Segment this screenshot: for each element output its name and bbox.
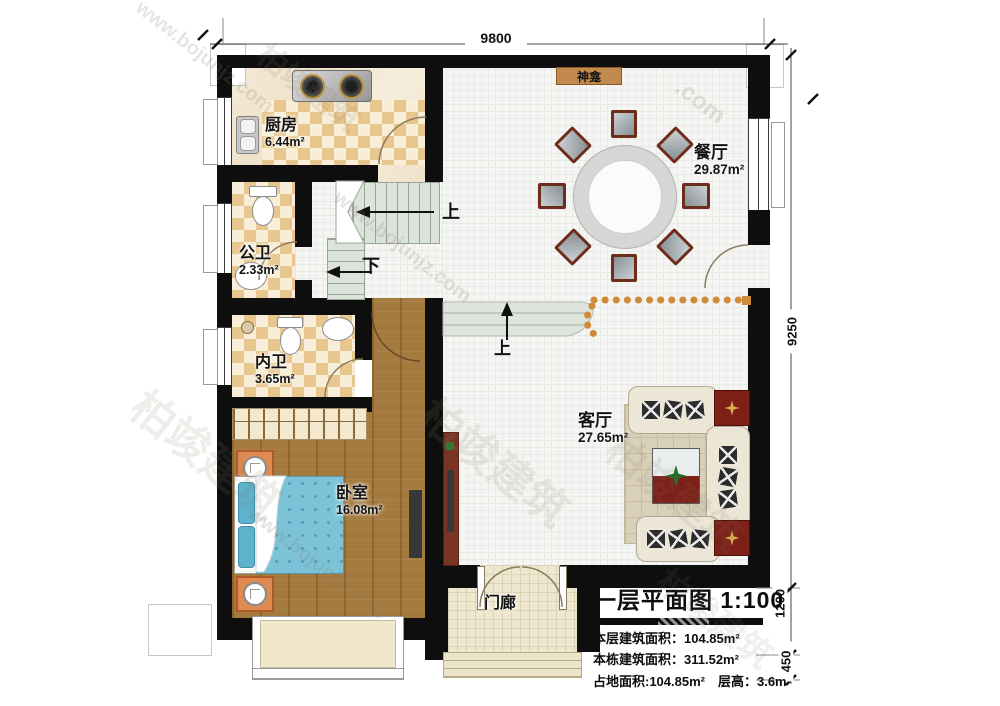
stairs-lower-flight <box>327 238 365 300</box>
bay-window-sill <box>252 668 404 679</box>
wall <box>748 288 770 588</box>
info-line-3: 占地面积:104.85m² 层高：3.6m <box>593 671 953 690</box>
dining-table-top <box>588 160 662 234</box>
room-label-bedroom: 卧室 16.08m² <box>336 486 383 517</box>
living-tv-icon <box>447 470 454 532</box>
toilet-icon <box>252 196 274 226</box>
wall <box>425 55 443 182</box>
wall <box>232 165 378 182</box>
toilet-icon <box>280 327 301 355</box>
plan-scale: 1:100 <box>720 587 784 613</box>
room-name: 厨房 <box>265 118 305 135</box>
cushion <box>690 529 710 549</box>
porch-steps <box>443 652 582 678</box>
title-underline-hatch <box>658 618 709 625</box>
room-label-private-bath: 内卫 3.65m² <box>255 355 295 386</box>
room-label-dining: 餐厅 29.87m² <box>694 144 744 177</box>
cushion <box>719 446 737 464</box>
shower-head-icon <box>241 321 254 334</box>
wall <box>217 165 232 203</box>
window <box>217 327 232 387</box>
stairs-up-label: 上 <box>442 198 460 224</box>
wall <box>443 565 480 588</box>
room-name: 内卫 <box>255 355 295 372</box>
room-area: 6.44m² <box>265 135 305 149</box>
cushion <box>685 400 705 420</box>
cushion <box>668 529 689 550</box>
window-sill <box>203 205 218 273</box>
porch-door-leaf <box>559 566 567 610</box>
room-area: 2.33m² <box>239 263 279 277</box>
window-sill <box>203 329 218 385</box>
stairs-upper-flight <box>352 182 440 244</box>
stairs-down-label: 下 <box>362 252 380 278</box>
sink-basin <box>240 119 256 134</box>
window <box>217 97 232 167</box>
bay-window <box>260 620 396 668</box>
wall <box>425 298 443 623</box>
wall <box>295 280 312 298</box>
bedroom-tv-icon <box>409 490 422 558</box>
side-table <box>714 520 750 556</box>
lamp-icon <box>243 582 267 606</box>
dining-chair <box>538 183 566 209</box>
room-name: 卧室 <box>336 486 383 503</box>
plant-icon <box>446 442 454 450</box>
room-area: 16.08m² <box>336 503 383 517</box>
cushion <box>642 401 660 419</box>
dining-chair <box>611 254 637 282</box>
room-name: 门廊 <box>484 596 516 613</box>
wall <box>217 273 232 327</box>
wall <box>748 55 770 118</box>
wall <box>295 182 312 247</box>
info-line-2: 本栋建筑面积：311.52m² <box>593 649 953 668</box>
wall <box>425 588 448 660</box>
wardrobe <box>232 408 367 440</box>
room-name: 客厅 <box>578 412 628 430</box>
sofa-bottom <box>636 516 720 562</box>
title-underline <box>593 618 763 625</box>
wall <box>217 55 770 68</box>
cushion <box>718 489 738 509</box>
pillow-icon <box>238 526 255 568</box>
title-block: 一层平面图 1:100 本层建筑面积：104.85m² 本栋建筑面积：311.5… <box>593 581 953 690</box>
cushion <box>663 400 683 420</box>
star-ornament-icon <box>725 401 740 416</box>
plant-icon <box>665 465 687 487</box>
coffee-table <box>652 448 700 504</box>
window-sill <box>203 99 218 165</box>
wall <box>217 385 232 640</box>
room-area: 27.65m² <box>578 430 628 446</box>
sink-basin <box>240 136 256 151</box>
dim-right: 9250 <box>785 310 800 354</box>
room-name: 餐厅 <box>694 144 744 162</box>
ramp-up-label: 上 <box>494 334 511 359</box>
dining-chair <box>682 183 710 209</box>
corridor-floor <box>372 298 425 412</box>
plan-title: 一层平面图 1:100 <box>593 581 953 615</box>
side-table <box>714 390 750 426</box>
room-area: 3.65m² <box>255 372 295 386</box>
shrine-label: 神龛 <box>556 67 622 85</box>
dining-chair <box>611 110 637 138</box>
dim-top: 9800 <box>465 30 527 46</box>
wall <box>355 315 372 360</box>
pillow-icon <box>238 482 255 524</box>
cushion <box>647 530 665 548</box>
nightstand <box>236 576 274 612</box>
room-label-porch: 门廊 <box>484 596 516 613</box>
window <box>217 203 232 275</box>
sofa-right <box>706 426 750 528</box>
outside-frame <box>148 604 212 656</box>
room-area: 29.87m² <box>694 162 744 178</box>
wall <box>217 55 232 97</box>
stove-icon <box>292 70 372 102</box>
burner-icon <box>300 74 325 99</box>
window-sill <box>771 122 785 208</box>
floorplan-canvas: 上 下 上 <box>0 0 1000 706</box>
window <box>748 118 770 212</box>
wall <box>232 298 372 315</box>
plan-title-text: 一层平面图 <box>593 587 713 613</box>
room-name: 公卫 <box>239 246 279 263</box>
wall <box>748 210 770 245</box>
washbasin-icon <box>322 317 354 341</box>
room-label-living: 客厅 27.65m² <box>578 412 628 445</box>
burner-icon <box>339 74 364 99</box>
info-line-1: 本层建筑面积：104.85m² <box>593 628 953 647</box>
star-ornament-icon <box>725 531 740 546</box>
sofa-top <box>628 386 718 434</box>
room-label-kitchen: 厨房 6.44m² <box>265 118 305 149</box>
cushion <box>718 467 739 488</box>
bed <box>256 476 344 574</box>
room-label-public-bath: 公卫 2.33m² <box>239 246 279 277</box>
kitchen-sink-icon <box>236 116 259 154</box>
